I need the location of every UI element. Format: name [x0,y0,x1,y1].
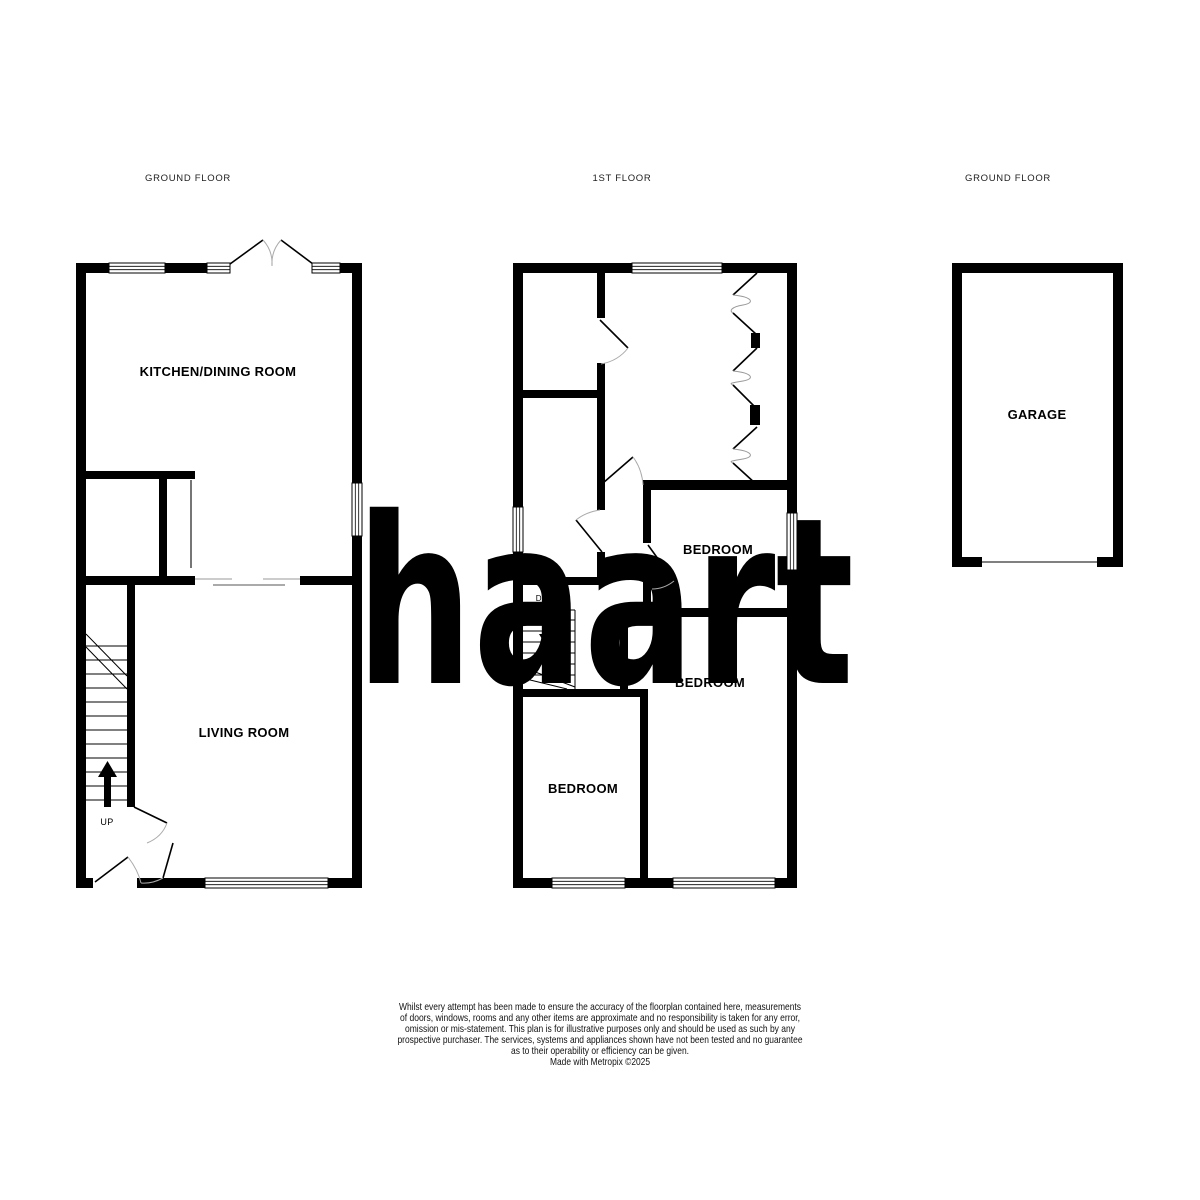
up-arrow [104,776,111,807]
floorplan-image: haart [0,0,1200,1200]
stair-label-down: DOWN [536,594,563,603]
disclaimer-line: as to their operability or efficiency ca… [511,1046,689,1057]
disclaimer-line: Whilst every attempt has been made to en… [399,1002,801,1013]
window [205,878,328,888]
window [673,878,775,888]
window [632,263,722,273]
stair-label-up: UP [100,817,113,827]
window [352,483,362,536]
room-label-bedroom-1: BEDROOM [683,542,753,557]
window [109,263,165,273]
window [513,507,523,552]
disclaimer-line: Made with Metropix ©2025 [550,1057,650,1068]
disclaimer-line: omission or mis-statement. This plan is … [405,1024,796,1035]
staircase-up [86,634,127,807]
floor-title-first: 1ST FLOOR [593,173,652,184]
disclaimer-line: prospective purchaser. The services, sys… [398,1035,803,1046]
garage-plan: GARAGE [952,263,1123,567]
french-doors [230,240,313,266]
wardrobe-bifold-doors [731,273,760,484]
room-label-garage: GARAGE [1008,407,1067,422]
window [312,263,340,273]
disclaimer: Whilst every attempt has been made to en… [398,1002,803,1068]
window [552,878,625,888]
floor-title-ground-right: GROUND FLOOR [965,173,1051,184]
disclaimer-line: of doors, windows, rooms and any other i… [400,1013,800,1024]
ground-floor-plan: KITCHEN/DINING ROOM LIVING ROOM UP [76,240,362,888]
room-label-bedroom-3: BEDROOM [548,781,618,796]
floor-title-ground-left: GROUND FLOOR [145,173,231,184]
window [787,513,797,570]
room-label-living-room: LIVING ROOM [199,725,290,740]
floorplan-page: haart [0,0,1200,1200]
window [207,263,230,273]
room-label-kitchen-dining: KITCHEN/DINING ROOM [140,364,297,379]
room-label-bedroom-2: BEDROOM [675,675,745,690]
